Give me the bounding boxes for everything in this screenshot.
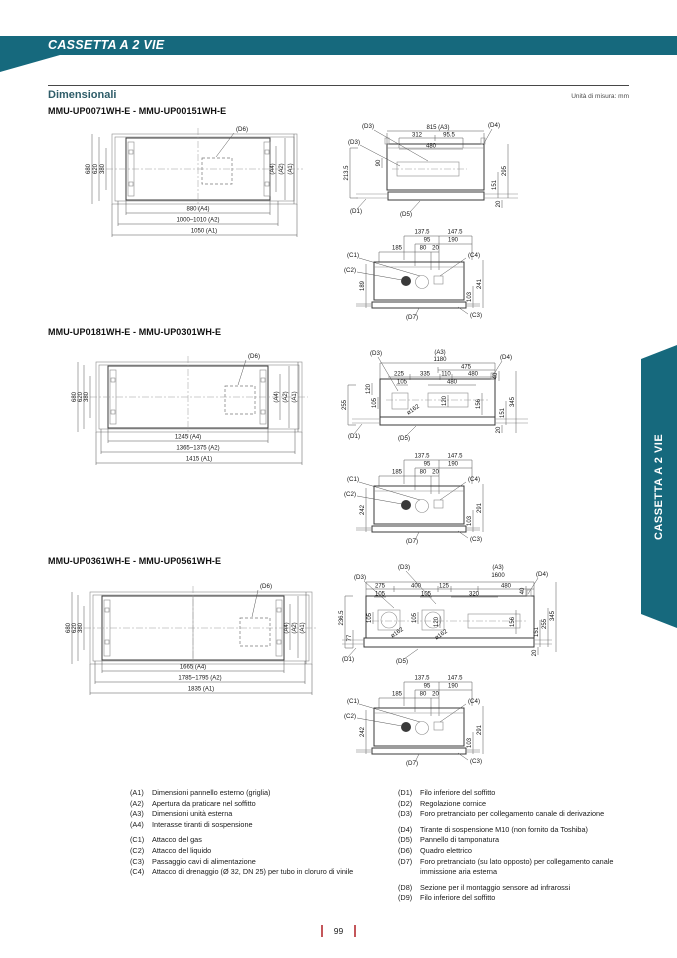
dim-label: 213.5 bbox=[344, 165, 350, 181]
dim-label: 103 bbox=[467, 515, 473, 526]
dim-label: 125 bbox=[439, 584, 450, 590]
legend-item: (D4)Tirante di sospensione M10 (non forn… bbox=[398, 825, 648, 836]
dim-label: 345 bbox=[550, 610, 556, 621]
legend-ref: (D2) bbox=[398, 799, 420, 810]
dim-label: 147.5 bbox=[447, 230, 463, 236]
callout-label: (D3) bbox=[348, 139, 360, 146]
dim-label: 190 bbox=[448, 462, 459, 468]
dim-label: 105 bbox=[397, 380, 408, 386]
legend-item: (D7)Foro pretranciato (su lato opposto) … bbox=[398, 857, 648, 878]
callout-label: (D7) bbox=[406, 314, 418, 321]
page-number-area: 99 bbox=[0, 922, 677, 940]
dim-label: 291 bbox=[477, 724, 483, 735]
dim-label: 1835 (A1) bbox=[188, 687, 214, 693]
callout-label: (C3) bbox=[470, 312, 482, 319]
legend-ref: (A1) bbox=[130, 788, 152, 799]
callout-label: (D5) bbox=[400, 211, 412, 218]
dim-label: 380 bbox=[78, 622, 84, 633]
side-tab-label: CASSETTA A 2 VIE bbox=[641, 345, 677, 628]
legend-ref: (D8) bbox=[398, 883, 420, 894]
legend-text: Quadro elettrico bbox=[420, 846, 625, 857]
dim-label: 880 (A4) bbox=[186, 207, 209, 213]
model-heading-2: MMU-UP0181WH-E - MMU-UP0301WH-E bbox=[48, 327, 221, 337]
legend-ref: (A2) bbox=[130, 799, 152, 810]
ref-label: (A3) bbox=[492, 565, 503, 571]
legend-item: (D2)Regolazione cornice bbox=[398, 799, 648, 810]
legend-text: Dimensioni unità esterna bbox=[152, 809, 357, 820]
dim-label: 380 bbox=[100, 163, 106, 174]
dim-label: 620 bbox=[93, 163, 99, 174]
dim-label: 225 bbox=[394, 372, 405, 378]
ref-label: (A2) bbox=[279, 163, 285, 174]
legend-text: Pannello di tamponatura bbox=[420, 835, 625, 846]
dim-label: 480 bbox=[468, 372, 479, 378]
legend-text: Filo inferiore del soffitto bbox=[420, 893, 625, 904]
callout-label: (C1) bbox=[347, 476, 359, 483]
callout-label: (D4) bbox=[488, 122, 500, 129]
dim-label: 185 bbox=[392, 692, 403, 698]
side-tab: CASSETTA A 2 VIE bbox=[641, 345, 677, 628]
dim-label: 20 bbox=[496, 426, 502, 433]
dim-label: 40 bbox=[520, 587, 526, 594]
callout-label: (D5) bbox=[398, 435, 410, 442]
dim-label: 680 bbox=[86, 163, 92, 174]
legend-item: (C4)Attacco di drenaggio (Ø 32, DN 25) p… bbox=[130, 867, 390, 878]
callout-label: (D7) bbox=[406, 760, 418, 767]
dim-label: 137.5 bbox=[414, 454, 430, 460]
dim-label: 1785~1795 (A2) bbox=[178, 676, 221, 682]
callout-label: (C1) bbox=[347, 252, 359, 259]
callout-label: (C2) bbox=[344, 491, 356, 498]
catalog-page: CASSETTA A 2 VIE Dimensionali Unità di m… bbox=[0, 0, 677, 958]
dim-label: 40 bbox=[493, 372, 499, 379]
dim-label: 190 bbox=[448, 684, 459, 690]
callout-label: (D5) bbox=[396, 658, 408, 665]
legend-item: (C3)Passaggio cavi di alimentazione bbox=[130, 857, 390, 868]
legend-ref: (D7) bbox=[398, 857, 420, 878]
side-outline bbox=[350, 129, 518, 212]
page-number-bar-left bbox=[321, 925, 323, 937]
ref-label: (A1) bbox=[288, 163, 294, 174]
detail-view-drawing-2: 137.5 147.5 95 190 185 80 20 (C1) (C2) (… bbox=[342, 450, 497, 550]
dim-label: 1600 bbox=[491, 573, 505, 579]
callout-label: (C4) bbox=[468, 698, 480, 705]
dim-label: 120 bbox=[442, 395, 448, 406]
legend-item: (A1)Dimensioni pannello esterno (griglia… bbox=[130, 788, 390, 799]
dim-label: 295 bbox=[502, 165, 508, 176]
legend-text: Sezione per il montaggio sensore ad infr… bbox=[420, 883, 625, 894]
page-number-bar-right bbox=[354, 925, 356, 937]
dim-label: 480 bbox=[447, 380, 458, 386]
side-view-drawing-3: (D3) (D3) (A3) 1600 (D4) 275 400 125 480… bbox=[338, 560, 568, 671]
dim-label: 20 bbox=[432, 246, 439, 252]
dim-label: 312 bbox=[412, 133, 423, 139]
legend-ref: (C2) bbox=[130, 846, 152, 857]
legend-item: (D9)Filo inferiore del soffitto bbox=[398, 893, 648, 904]
callout-label: (D3) bbox=[398, 564, 410, 571]
dim-label: 80 bbox=[420, 470, 427, 476]
legend-text: Foro pretranciato per collegamento canal… bbox=[420, 809, 625, 820]
callout-label: (C2) bbox=[344, 713, 356, 720]
legend-ref: (D9) bbox=[398, 893, 420, 904]
dim-label: 335 bbox=[420, 372, 431, 378]
dim-label: 190 bbox=[448, 238, 459, 244]
dim-label: 110 bbox=[441, 372, 451, 378]
callout-label: (C3) bbox=[470, 536, 482, 543]
callout-label: (D1) bbox=[350, 208, 362, 215]
legend-item: (D3)Foro pretranciato per collegamento c… bbox=[398, 809, 648, 820]
callout-label: (D7) bbox=[406, 538, 418, 545]
callout-label: (D3) bbox=[354, 574, 366, 581]
legend-ref: (C3) bbox=[130, 857, 152, 868]
callout-label: (D1) bbox=[348, 433, 360, 440]
callout-label: (C4) bbox=[468, 476, 480, 483]
dim-label: 320 bbox=[469, 592, 480, 598]
legend-text: Apertura da praticare nel soffitto bbox=[152, 799, 357, 810]
legend-item: (D6)Quadro elettrico bbox=[398, 846, 648, 857]
legend-text: Dimensioni pannello esterno (griglia) bbox=[152, 788, 357, 799]
legend-ref: (A3) bbox=[130, 809, 152, 820]
dim-label: 185 bbox=[392, 246, 403, 252]
dim-label: 105 bbox=[375, 592, 386, 598]
dim-label: 103 bbox=[467, 291, 473, 302]
legend-text: Tirante di sospensione M10 (non fornito … bbox=[420, 825, 625, 836]
plan-view-drawing-2: (D6) 1245 (A4) 1365~1375 (A2) 1415 (A1) … bbox=[70, 348, 320, 473]
dim-label: 400 bbox=[411, 584, 422, 590]
section-heading: Dimensionali bbox=[48, 89, 116, 101]
legend-text: Foro pretranciato (su lato opposto) per … bbox=[420, 857, 625, 878]
callout-label: (D6) bbox=[260, 583, 272, 590]
legend-right: (D1)Filo inferiore del soffitto (D2)Rego… bbox=[398, 788, 648, 904]
legend-text: Attacco di drenaggio (Ø 32, DN 25) per t… bbox=[152, 867, 357, 878]
legend-ref: (D4) bbox=[398, 825, 420, 836]
header-banner-wedge bbox=[0, 55, 60, 72]
legend-ref: (D3) bbox=[398, 809, 420, 820]
dim-label: 105 bbox=[367, 612, 373, 623]
dim-label: 1180 bbox=[434, 357, 448, 363]
callout-label: (C4) bbox=[468, 252, 480, 259]
dim-label: 815 (A3) bbox=[426, 125, 449, 131]
dim-label: 151 bbox=[492, 179, 498, 190]
dim-label: 147.5 bbox=[447, 676, 463, 682]
dim-label: 80 bbox=[420, 692, 427, 698]
dim-label: 480 bbox=[501, 584, 512, 590]
dim-label: 95 bbox=[424, 462, 431, 468]
dim-label: 151 bbox=[534, 626, 540, 637]
dim-label: 1665 (A4) bbox=[180, 665, 206, 671]
dim-label: 105 bbox=[412, 612, 418, 623]
dim-label: 255 bbox=[342, 399, 348, 410]
callout-label: (C2) bbox=[344, 267, 356, 274]
legend-item: (C1)Attacco del gas bbox=[130, 835, 390, 846]
callout-label: (D6) bbox=[248, 353, 260, 360]
legend-ref: (D1) bbox=[398, 788, 420, 799]
dim-label: 20 bbox=[496, 200, 502, 207]
dim-label: 236.5 bbox=[339, 610, 345, 626]
dim-label: 95.5 bbox=[443, 133, 455, 139]
dim-label: 147.5 bbox=[447, 454, 463, 460]
legend-left: (A1)Dimensioni pannello esterno (griglia… bbox=[130, 788, 390, 878]
ref-label: (A3) bbox=[434, 350, 445, 356]
side-outline bbox=[348, 357, 528, 436]
dim-label: 120 bbox=[434, 616, 440, 627]
dim-label: 95 bbox=[424, 684, 431, 690]
page-number: 99 bbox=[334, 926, 343, 936]
dim-label: 345 bbox=[510, 396, 516, 407]
legend-item: (A4)Interasse tiranti di sospensione bbox=[130, 820, 390, 831]
legend-ref: (D5) bbox=[398, 835, 420, 846]
header-rule bbox=[48, 85, 629, 86]
dim-label: 80 bbox=[420, 246, 427, 252]
dim-label: 120 bbox=[366, 383, 372, 394]
callout-label: (D3) bbox=[362, 123, 374, 130]
legend-item: (D8)Sezione per il montaggio sensore ad … bbox=[398, 883, 648, 894]
ref-label: (A4) bbox=[270, 163, 276, 174]
dim-label: 77 bbox=[347, 634, 353, 641]
dim-label: 242 bbox=[360, 504, 366, 515]
dim-label: 291 bbox=[477, 502, 483, 513]
dim-label: 475 bbox=[461, 365, 472, 371]
dim-label: 156 bbox=[476, 398, 482, 409]
dim-label: 242 bbox=[360, 726, 366, 737]
dim-label: 1050 (A1) bbox=[191, 229, 217, 235]
callout-label: (D4) bbox=[536, 571, 548, 578]
callout-label: (C1) bbox=[347, 698, 359, 705]
header-banner: CASSETTA A 2 VIE bbox=[0, 36, 677, 55]
model-heading-3: MMU-UP0361WH-E - MMU-UP0561WH-E bbox=[48, 556, 221, 566]
detail-view-drawing-3: 137.5 147.5 95 190 185 80 20 (C1) (C2) (… bbox=[342, 672, 497, 772]
legend-text: Passaggio cavi di alimentazione bbox=[152, 857, 357, 868]
legend-text: Interasse tiranti di sospensione bbox=[152, 820, 357, 831]
legend-item: (A2)Apertura da praticare nel soffitto bbox=[130, 799, 390, 810]
legend-ref: (C1) bbox=[130, 835, 152, 846]
dim-label: 90 bbox=[376, 159, 382, 166]
ref-label: (A1) bbox=[292, 391, 298, 402]
dim-label: 95 bbox=[424, 238, 431, 244]
callout-label: (D6) bbox=[236, 126, 248, 133]
legend-ref: (D6) bbox=[398, 846, 420, 857]
legend-item: (C2)Attacco del liquido bbox=[130, 846, 390, 857]
callout-label: (D1) bbox=[342, 656, 354, 663]
dim-label: 137.5 bbox=[414, 230, 430, 236]
dim-label: 20 bbox=[532, 649, 538, 656]
plan-view-drawing-1: (D6) 880 (A4) 1000–1010 (A2) 1050 (A1) 6… bbox=[82, 120, 322, 245]
dim-label: 137.5 bbox=[414, 676, 430, 682]
dim-label: 275 bbox=[375, 584, 386, 590]
legend-text: Attacco del liquido bbox=[152, 846, 357, 857]
legend-text: Filo inferiore del soffitto bbox=[420, 788, 625, 799]
legend-text: Regolazione cornice bbox=[420, 799, 625, 810]
legend-ref: (A4) bbox=[130, 820, 152, 831]
dim-label: 103 bbox=[467, 737, 473, 748]
dim-label: 1000–1010 (A2) bbox=[176, 218, 219, 224]
dim-label: 1365~1375 (A2) bbox=[176, 446, 219, 452]
dim-label: 1245 (A4) bbox=[175, 435, 201, 441]
plan-view-drawing-3: (D6) 1665 (A4) 1785~1795 (A2) 1835 (A1) … bbox=[64, 576, 326, 707]
dim-label: ø162 bbox=[434, 628, 449, 641]
callout-label: (D3) bbox=[370, 350, 382, 357]
dim-label: 480 bbox=[426, 144, 437, 150]
ref-label: (A1) bbox=[300, 622, 306, 633]
callout-label: (C3) bbox=[470, 758, 482, 765]
dim-label: 156 bbox=[510, 616, 516, 627]
legend-item: (D5)Pannello di tamponatura bbox=[398, 835, 648, 846]
legend-ref: (C4) bbox=[130, 867, 152, 878]
legend-item: (A3)Dimensioni unità esterna bbox=[130, 809, 390, 820]
ref-label: (A2) bbox=[283, 391, 289, 402]
side-view-drawing-2: (A3) 1180 475 225 335 110 480 105 480 12… bbox=[340, 347, 550, 447]
model-heading-1: MMU-UP0071WH-E - MMU-UP00151WH-E bbox=[48, 106, 226, 116]
dim-label: 20 bbox=[432, 470, 439, 476]
detail-view-drawing-1: 137.5 147.5 95 190 185 80 20 (C1) (C2) (… bbox=[342, 226, 497, 326]
dim-label: 380 bbox=[84, 391, 90, 402]
ref-label: (A2) bbox=[292, 622, 298, 633]
dim-label: 151 bbox=[500, 407, 506, 418]
dim-label: 20 bbox=[432, 692, 439, 698]
dim-label: 105 bbox=[372, 397, 378, 408]
legend-text: Attacco del gas bbox=[152, 835, 357, 846]
dim-label: 255 bbox=[542, 618, 548, 629]
ref-label: (A4) bbox=[284, 622, 290, 633]
side-view-drawing-1: 815 (A3) 312 95.5 480 90 (D3) (D3) (D4) … bbox=[342, 118, 532, 225]
callout-label: (D4) bbox=[500, 354, 512, 361]
units-note: Unità di misura: mm bbox=[571, 93, 629, 100]
dim-label: 105 bbox=[421, 592, 432, 598]
dim-label: 185 bbox=[392, 470, 403, 476]
page-title: CASSETTA A 2 VIE bbox=[48, 36, 164, 55]
dim-label: 189 bbox=[360, 280, 366, 291]
ref-label: (A4) bbox=[274, 391, 280, 402]
dim-label: 241 bbox=[477, 278, 483, 289]
dim-label: 1415 (A1) bbox=[186, 457, 212, 463]
dim-label: ø162 bbox=[406, 403, 421, 416]
legend-item: (D1)Filo inferiore del soffitto bbox=[398, 788, 648, 799]
